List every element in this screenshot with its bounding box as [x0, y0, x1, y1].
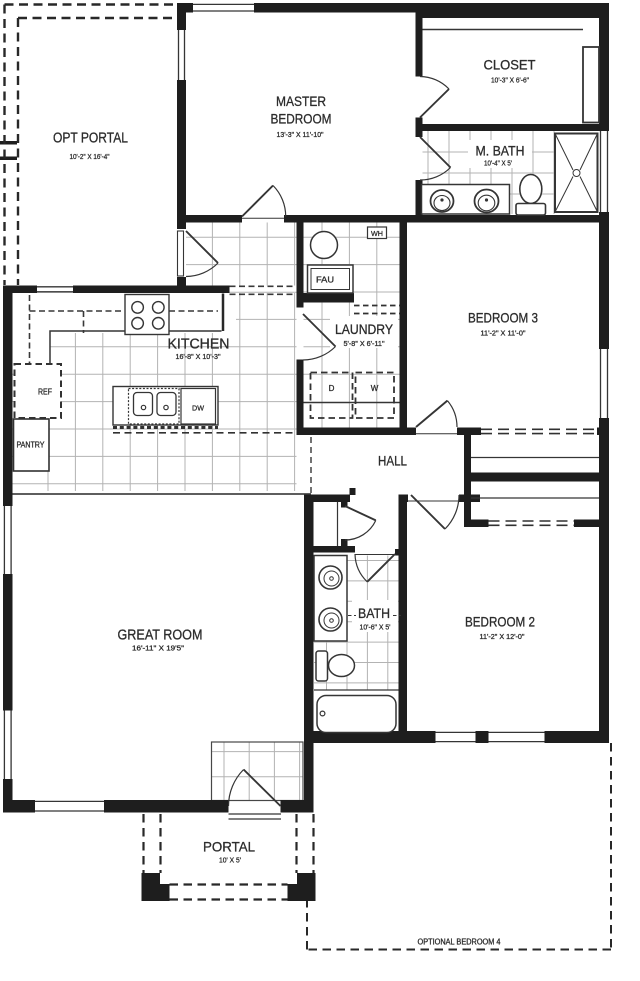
svg-text:W: W [371, 384, 379, 393]
svg-text:11'-2" X 11'-0": 11'-2" X 11'-0" [481, 329, 526, 338]
svg-text:MASTER: MASTER [276, 93, 326, 109]
svg-text:5'-8" X 6'-11": 5'-8" X 6'-11" [344, 339, 385, 348]
svg-text:BATH: BATH [358, 606, 390, 621]
svg-text:16'-11" X 19'5": 16'-11" X 19'5" [132, 644, 184, 653]
svg-text:BEDROOM 2: BEDROOM 2 [465, 614, 535, 630]
svg-text:10'-6" X 5': 10'-6" X 5' [360, 623, 392, 632]
svg-text:CLOSET: CLOSET [484, 57, 536, 73]
svg-text:10'-2" X 16'-4": 10'-2" X 16'-4" [70, 152, 110, 161]
svg-text:PANTRY: PANTRY [17, 441, 46, 450]
svg-text:PORTAL: PORTAL [203, 839, 255, 855]
svg-text:BEDROOM 3: BEDROOM 3 [468, 310, 538, 326]
svg-text:M. BATH: M. BATH [476, 144, 525, 159]
svg-text:WH: WH [371, 229, 383, 238]
svg-text:13'-3" X 11'-10": 13'-3" X 11'-10" [277, 130, 324, 139]
svg-text:REF: REF [38, 388, 52, 397]
svg-text:HALL: HALL [378, 453, 407, 469]
svg-text:BEDROOM: BEDROOM [271, 111, 332, 127]
svg-text:FAU: FAU [316, 276, 334, 285]
svg-text:OPT PORTAL: OPT PORTAL [53, 130, 128, 147]
svg-text:11'-2" X 12'-0": 11'-2" X 12'-0" [480, 632, 525, 641]
svg-text:DW: DW [192, 404, 205, 413]
svg-text:16'-8" X 10'-3": 16'-8" X 10'-3" [176, 352, 221, 361]
svg-text:D: D [329, 384, 335, 393]
svg-text:KITCHEN: KITCHEN [168, 337, 230, 353]
svg-text:OPTIONAL BEDROOM 4: OPTIONAL BEDROOM 4 [418, 938, 502, 947]
svg-text:GREAT ROOM: GREAT ROOM [118, 627, 203, 644]
svg-text:LAUNDRY: LAUNDRY [335, 322, 393, 337]
svg-text:10' X 5': 10' X 5' [219, 856, 241, 865]
svg-text:10'-4" X 5': 10'-4" X 5' [484, 159, 512, 168]
svg-text:10'-3" X 6'-6": 10'-3" X 6'-6" [491, 76, 529, 85]
